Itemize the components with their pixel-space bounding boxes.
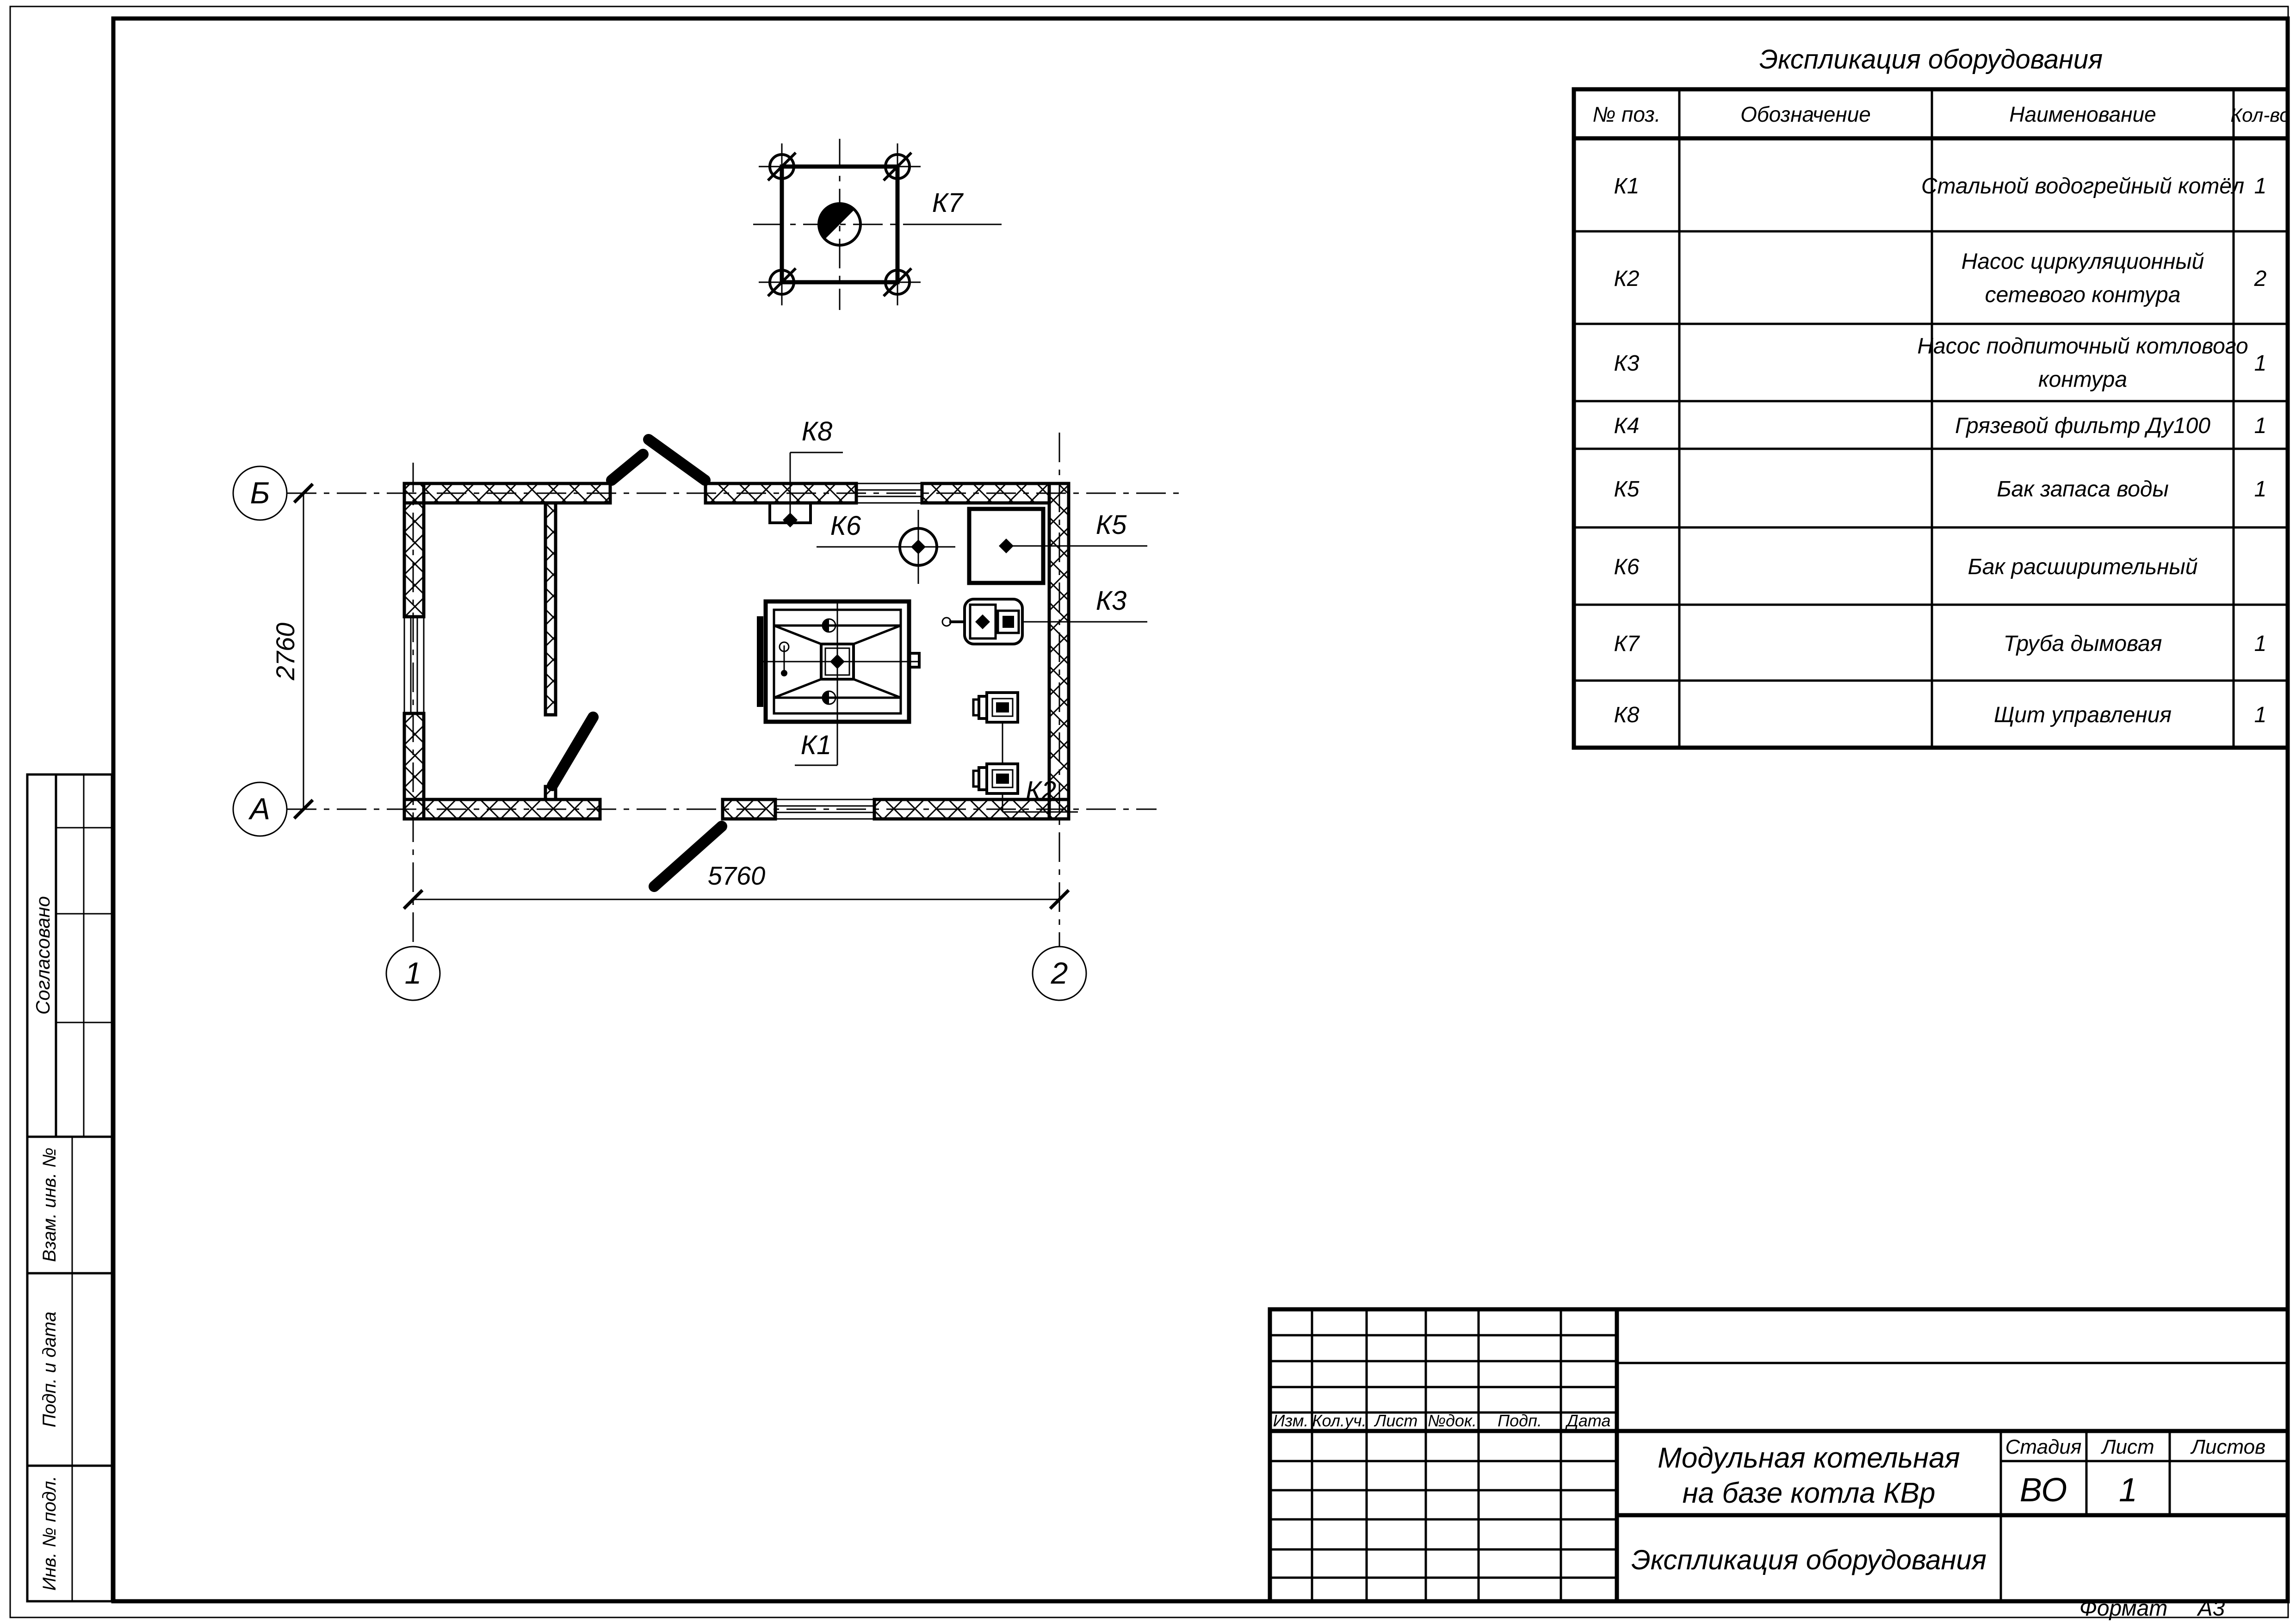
sheets-header: Листов — [2190, 1436, 2265, 1458]
row-pos: К7 — [1614, 632, 1640, 656]
row-name: Насос подпиточный котлового — [1917, 334, 2248, 359]
rev-col-izm: Изм. — [1273, 1411, 1309, 1430]
dim-height: 2760 — [271, 623, 300, 681]
row-pos: К1 — [1614, 174, 1640, 198]
table-row: К3 Насос подпиточный котлового контура 1 — [1614, 334, 2267, 392]
row-qty: 1 — [2254, 477, 2267, 502]
chimney-k7: К7 — [753, 139, 1002, 310]
door-leaf-top-small — [612, 454, 643, 480]
label-k6: К6 — [830, 511, 861, 541]
row-pos: К8 — [1614, 703, 1640, 727]
table-row: К4 Грязевой фильтр Ду100 1 — [1614, 414, 2267, 438]
dimension-horizontal: 5760 — [404, 861, 1069, 909]
floor-plan: Б А 1 2 2760 5760 — [233, 139, 1184, 1000]
cad-canvas: Согласовано Взам. инв. № Подп. и дата Ин… — [0, 0, 2296, 1623]
format-value: А3 — [2197, 1596, 2225, 1621]
project-title-line2: на базе котла КВр — [1683, 1477, 1936, 1509]
drawing-sheet: Согласовано Взам. инв. № Подп. и дата Ин… — [0, 0, 2296, 1623]
rev-col-list: Лист — [1374, 1411, 1418, 1430]
label-k2: К2 — [1026, 776, 1056, 806]
sheet-value: 1 — [2119, 1472, 2137, 1509]
row-qty: 1 — [2254, 351, 2267, 376]
rev-col-koluch: Кол.уч. — [1312, 1411, 1366, 1430]
table-row: К8 Щит управления 1 — [1614, 703, 2267, 727]
row-name-line2: сетевого контура — [1985, 283, 2181, 307]
row-name-line2: контура — [2038, 367, 2127, 392]
dimension-vertical: 2760 — [271, 484, 313, 818]
equipment-rows: К1 Стальной водогрейный котёл 1 К2 Насос… — [1614, 174, 2267, 727]
row-name: Стальной водогрейный котёл — [1921, 174, 2244, 198]
sheet-header: Лист — [2100, 1436, 2154, 1458]
partition-wall — [545, 503, 556, 715]
boiler-k1: К1 — [757, 601, 920, 765]
title-block: Изм. Кол.уч. Лист №док. Подп. Дата Модул… — [1270, 1309, 2288, 1601]
row-pos: К4 — [1614, 414, 1640, 438]
row-pos: К2 — [1614, 266, 1640, 291]
equipment-table-header: № поз. Обозначение Наименование Кол-во — [1592, 102, 2290, 126]
row-qty: 1 — [2254, 632, 2267, 656]
row-qty: 2 — [2254, 266, 2267, 291]
outer-border — [10, 6, 2288, 1617]
side-strip: Согласовано Взам. инв. № Подп. и дата Ин… — [27, 774, 112, 1601]
inv-orig-label: Инв. № подл. — [39, 1476, 60, 1591]
col-header-pos: № поз. — [1592, 102, 1660, 126]
col-header-name: Наименование — [2009, 102, 2156, 126]
makeup-pump-k3: К3 — [942, 586, 1147, 644]
row-name: Грязевой фильтр Ду100 — [1955, 414, 2210, 438]
row-qty: 1 — [2254, 703, 2267, 727]
door-leaf-interior — [552, 717, 593, 786]
format-label: Формат — [2079, 1596, 2168, 1621]
rev-col-podp: Подп. — [1498, 1411, 1542, 1430]
stage-value: ВО — [2020, 1472, 2067, 1509]
label-k7: К7 — [932, 188, 964, 218]
format-note: Формат А3 — [2079, 1596, 2225, 1621]
row-qty: 1 — [2254, 414, 2267, 438]
axis-label-2: 2 — [1051, 956, 1068, 990]
table-row: К2 Насос циркуляционный сетевого контура… — [1614, 249, 2267, 307]
rev-col-data: Дата — [1565, 1411, 1611, 1430]
expansion-tank-k6: К6 — [817, 510, 955, 584]
table-row: К5 Бак запаса воды 1 — [1614, 477, 2267, 502]
stage-sheet-header: Стадия Лист Листов — [2005, 1436, 2265, 1458]
col-header-qty: Кол-во — [2230, 104, 2290, 126]
approved-label: Согласовано — [32, 896, 54, 1015]
doc-title: Экспликация оборудования — [1631, 1544, 1987, 1575]
row-name: Труба дымовая — [2004, 632, 2162, 656]
row-name: Насос циркуляционный — [1962, 249, 2204, 274]
label-k5: К5 — [1096, 510, 1127, 540]
axis-bubbles: Б А 1 2 — [233, 466, 1086, 1000]
label-k3: К3 — [1096, 586, 1126, 616]
equipment-table: Экспликация оборудования № поз. Обозначе… — [1574, 44, 2290, 748]
row-name: Бак запаса воды — [1997, 477, 2169, 502]
row-name: Бак расширительный — [1968, 555, 2197, 579]
table-row: К6 Бак расширительный — [1614, 555, 2198, 579]
replace-inv-label: Взам. инв. № — [39, 1147, 60, 1262]
row-qty: 1 — [2254, 174, 2267, 198]
sign-date-label: Подп. и дата — [39, 1312, 60, 1427]
pump-k2-lower — [973, 764, 1018, 793]
table-row: К7 Труба дымовая 1 — [1614, 632, 2267, 656]
door-leaf-top-large — [649, 440, 705, 480]
axis-label-1: 1 — [405, 956, 422, 990]
table-row: К1 Стальной водогрейный котёл 1 — [1614, 174, 2267, 198]
stage-header: Стадия — [2005, 1436, 2082, 1458]
axis-label-b: Б — [250, 476, 270, 510]
label-k8: К8 — [802, 416, 832, 446]
rev-col-dok: №док. — [1428, 1411, 1477, 1430]
col-header-designation: Обозначение — [1740, 102, 1871, 126]
row-name: Щит управления — [1994, 703, 2172, 727]
row-pos: К6 — [1614, 555, 1640, 579]
row-pos: К5 — [1614, 477, 1640, 502]
dim-width: 5760 — [708, 861, 766, 890]
row-pos: К3 — [1614, 351, 1640, 376]
pump-k2-upper — [973, 693, 1018, 722]
equipment-table-title: Экспликация оборудования — [1759, 44, 2103, 74]
window-left — [404, 617, 424, 713]
project-title-line1: Модульная котельная — [1658, 1442, 1960, 1474]
label-k1: К1 — [801, 730, 831, 760]
axis-label-a: А — [248, 792, 270, 826]
